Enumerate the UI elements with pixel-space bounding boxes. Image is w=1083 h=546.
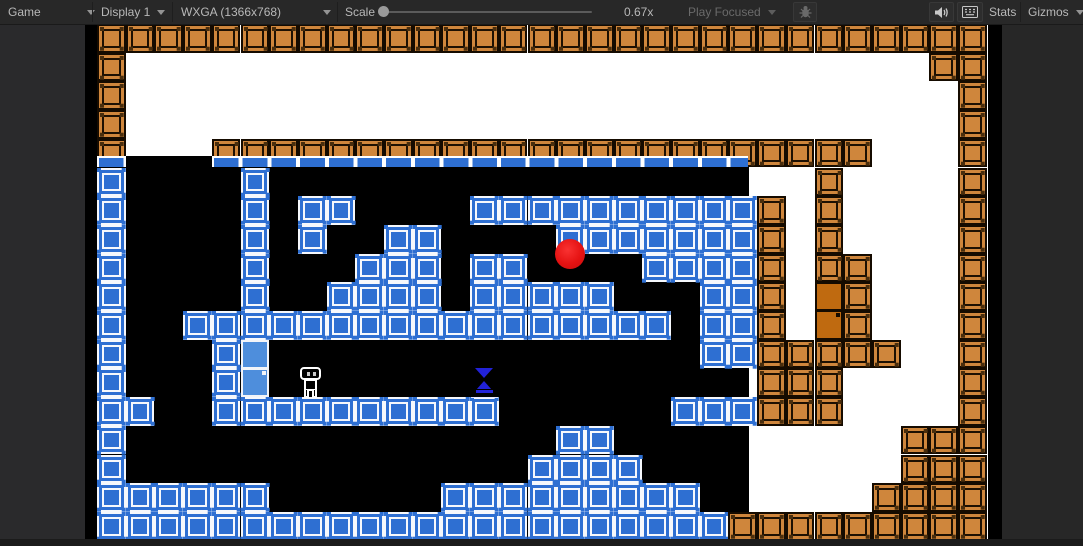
- blue-crate-tile: [97, 455, 126, 484]
- blue-crate-tile: [642, 196, 671, 225]
- orange-crate-tile: [585, 24, 614, 53]
- hourglass-upper-sand: [475, 368, 493, 378]
- orange-crate-tile: [614, 24, 643, 53]
- orange-crate-tile: [441, 24, 470, 53]
- blue-crate-tile: [241, 282, 270, 311]
- orange-crate-tile: [815, 368, 844, 397]
- blue-crate-tile: [642, 311, 671, 340]
- blue-crate-tile: [441, 512, 470, 539]
- orange-crate-tile: [929, 455, 958, 484]
- blue-crate-tile: [97, 368, 126, 397]
- orange-crate-tile: [786, 139, 815, 168]
- orange-crate-tile: [815, 139, 844, 168]
- orange-crate-tile: [728, 512, 757, 539]
- blue-crate-tile: [154, 512, 183, 539]
- blue-crate-tile: [700, 340, 729, 369]
- blue-crate-tile: [126, 512, 155, 539]
- blue-crate-tile: [585, 483, 614, 512]
- orange-crate-tile: [757, 340, 786, 369]
- blue-crate-tile: [528, 512, 557, 539]
- orange-crate-tile: [958, 282, 987, 311]
- stats-button[interactable]: Stats: [989, 0, 1016, 24]
- chevron-down-icon: [157, 10, 165, 15]
- orange-crate-tile: [815, 196, 844, 225]
- blue-crate-tile: [413, 254, 442, 283]
- blue-crate-tile: [355, 254, 384, 283]
- orange-crate-tile: [843, 311, 872, 340]
- blue-crate-tile: [269, 397, 298, 426]
- blue-crate-tile: [384, 311, 413, 340]
- orange-crate-tile: [728, 24, 757, 53]
- blue-tile-strip: [97, 156, 126, 167]
- blue-crate-tile: [413, 282, 442, 311]
- audio-volume-icon: [934, 6, 949, 19]
- blue-crate-tile: [556, 455, 585, 484]
- display-dropdown[interactable]: Display 1: [101, 0, 165, 24]
- orange-crate-tile: [958, 368, 987, 397]
- gizmos-dropdown[interactable]: Gizmos: [1028, 0, 1083, 24]
- orange-crate-tile: [815, 225, 844, 254]
- orange-door-tile: [815, 282, 844, 339]
- blue-crate-tile: [556, 311, 585, 340]
- blue-crate-tile: [728, 225, 757, 254]
- orange-crate-tile: [958, 483, 987, 512]
- blue-crate-tile: [241, 254, 270, 283]
- blue-crate-tile: [327, 282, 356, 311]
- scale-label: Scale: [345, 0, 375, 24]
- blue-crate-tile: [585, 512, 614, 539]
- blue-crate-tile: [556, 282, 585, 311]
- orange-crate-tile: [843, 282, 872, 311]
- blue-crate-tile: [671, 254, 700, 283]
- player-leg: [312, 390, 317, 398]
- blue-crate-tile: [212, 483, 241, 512]
- orange-crate-tile: [958, 110, 987, 139]
- toolbar-separator: [337, 2, 338, 22]
- play-focused-dropdown[interactable]: Play Focused: [688, 0, 776, 24]
- blue-crate-tile: [212, 368, 241, 397]
- orange-crate-tile: [929, 24, 958, 53]
- orange-crate-tile: [958, 53, 987, 82]
- chevron-down-icon: [1076, 10, 1083, 15]
- orange-crate-tile: [97, 53, 126, 82]
- blue-crate-tile: [728, 254, 757, 283]
- orange-crate-tile: [470, 24, 499, 53]
- blue-crate-tile: [614, 225, 643, 254]
- orange-crate-tile: [843, 512, 872, 539]
- blue-crate-tile: [499, 512, 528, 539]
- blue-crate-tile: [499, 311, 528, 340]
- blue-crate-tile: [728, 397, 757, 426]
- blue-crate-tile: [700, 282, 729, 311]
- blue-crate-tile: [671, 196, 700, 225]
- display-dropdown-label: Display 1: [101, 5, 150, 19]
- gizmos-label: Gizmos: [1028, 5, 1069, 19]
- blue-crate-tile: [97, 254, 126, 283]
- blue-crate-tile: [183, 483, 212, 512]
- orange-crate-tile: [958, 24, 987, 53]
- orange-crate-tile: [872, 483, 901, 512]
- bug-icon: [798, 5, 813, 19]
- blue-crate-tile: [212, 512, 241, 539]
- blue-crate-tile: [241, 397, 270, 426]
- blue-crate-tile: [728, 196, 757, 225]
- blue-crate-tile: [126, 397, 155, 426]
- player-eye: [307, 372, 310, 376]
- blue-crate-tile: [355, 311, 384, 340]
- orange-crate-tile: [528, 24, 557, 53]
- blue-crate-tile: [528, 455, 557, 484]
- orange-crate-tile: [183, 24, 212, 53]
- toolbar-separator: [92, 2, 93, 22]
- blue-crate-tile: [642, 512, 671, 539]
- blue-crate-tile: [470, 196, 499, 225]
- blue-crate-tile: [671, 512, 700, 539]
- blue-crate-tile: [556, 512, 585, 539]
- blue-crate-tile: [241, 311, 270, 340]
- blue-crate-tile: [384, 225, 413, 254]
- editor-background-bottom: [0, 539, 1083, 546]
- orange-crate-tile: [700, 24, 729, 53]
- blue-crate-tile: [241, 483, 270, 512]
- orange-crate-tile: [929, 483, 958, 512]
- orange-crate-tile: [815, 24, 844, 53]
- blue-crate-tile: [499, 483, 528, 512]
- blue-crate-tile: [585, 311, 614, 340]
- blue-crate-tile: [298, 311, 327, 340]
- orange-crate-tile: [327, 24, 356, 53]
- blue-crate-tile: [528, 311, 557, 340]
- orange-crate-tile: [872, 24, 901, 53]
- toolbar-separator: [1020, 2, 1021, 22]
- orange-crate-tile: [671, 24, 700, 53]
- blue-crate-tile: [241, 168, 270, 197]
- blue-crate-tile: [384, 254, 413, 283]
- orange-crate-tile: [757, 254, 786, 283]
- orange-crate-tile: [786, 512, 815, 539]
- player-eye: [313, 372, 316, 376]
- frame-debugger-button[interactable]: [793, 2, 817, 22]
- resolution-dropdown-label: WXGA (1366x768): [181, 5, 281, 19]
- blue-crate-tile: [528, 196, 557, 225]
- orange-crate-tile: [154, 24, 183, 53]
- blue-crate-tile: [97, 340, 126, 369]
- orange-crate-tile: [298, 24, 327, 53]
- mute-audio-button[interactable]: [929, 2, 954, 22]
- slider-knob[interactable]: [378, 6, 389, 17]
- orange-crate-tile: [757, 139, 786, 168]
- blue-crate-tile: [470, 311, 499, 340]
- blue-crate-tile: [700, 311, 729, 340]
- blue-crate-tile: [355, 397, 384, 426]
- blue-crate-tile: [441, 397, 470, 426]
- orange-crate-tile: [958, 225, 987, 254]
- orange-crate-tile: [413, 24, 442, 53]
- editor-background-right: [1002, 24, 1083, 546]
- blue-crate-tile: [700, 397, 729, 426]
- unity-game-view: { "toolbar": { "game_tab": "Game", "disp…: [0, 0, 1083, 546]
- orange-crate-tile: [843, 340, 872, 369]
- blue-crate-tile: [97, 397, 126, 426]
- orange-crate-tile: [958, 139, 987, 168]
- orange-crate-tile: [929, 53, 958, 82]
- blue-crate-tile: [298, 225, 327, 254]
- orange-crate-tile: [958, 81, 987, 110]
- blue-crate-tile: [298, 512, 327, 539]
- blue-crate-tile: [384, 512, 413, 539]
- orange-crate-tile: [901, 455, 930, 484]
- blue-crate-tile: [499, 196, 528, 225]
- orange-crate-tile: [757, 196, 786, 225]
- blue-crate-tile: [327, 311, 356, 340]
- blue-crate-tile: [671, 483, 700, 512]
- blue-crate-tile: [241, 512, 270, 539]
- orange-crate-tile: [384, 24, 413, 53]
- blue-crate-tile: [212, 397, 241, 426]
- hourglass-bottom-bar: [471, 394, 498, 398]
- blue-door-tile: [241, 340, 270, 397]
- chevron-down-icon: [768, 10, 776, 15]
- blue-crate-tile: [355, 282, 384, 311]
- orange-crate-tile: [757, 282, 786, 311]
- blue-crate-tile: [441, 311, 470, 340]
- orange-crate-tile: [901, 483, 930, 512]
- blue-crate-tile: [97, 512, 126, 539]
- blue-crate-tile: [700, 196, 729, 225]
- orange-crate-tile: [929, 426, 958, 455]
- red-ball-sprite: [555, 239, 585, 269]
- orange-crate-tile: [843, 139, 872, 168]
- orange-crate-tile: [815, 254, 844, 283]
- resolution-dropdown[interactable]: WXGA (1366x768): [181, 0, 331, 24]
- blue-crate-tile: [241, 196, 270, 225]
- editor-background-left: [0, 24, 85, 546]
- blue-crate-tile: [470, 254, 499, 283]
- orange-crate-tile: [786, 368, 815, 397]
- orange-crate-tile: [901, 512, 930, 539]
- blue-crate-tile: [671, 397, 700, 426]
- blue-crate-tile: [298, 196, 327, 225]
- blue-crate-tile: [728, 340, 757, 369]
- blue-crate-tile: [212, 311, 241, 340]
- blue-crate-tile: [97, 483, 126, 512]
- blue-crate-tile: [499, 254, 528, 283]
- blue-crate-tile: [327, 196, 356, 225]
- blue-crate-tile: [269, 311, 298, 340]
- orange-crate-tile: [757, 225, 786, 254]
- blue-crate-tile: [269, 512, 298, 539]
- scale-value: 0.67x: [624, 0, 653, 24]
- orange-crate-tile: [958, 168, 987, 197]
- blue-crate-tile: [556, 196, 585, 225]
- blue-crate-tile: [298, 397, 327, 426]
- blue-crate-tile: [585, 455, 614, 484]
- orange-crate-tile: [872, 340, 901, 369]
- blue-crate-tile: [700, 254, 729, 283]
- blue-crate-tile: [585, 196, 614, 225]
- orange-crate-tile: [815, 397, 844, 426]
- blue-crate-tile: [528, 282, 557, 311]
- scale-slider[interactable]: [382, 0, 592, 24]
- orange-crate-tile: [757, 24, 786, 53]
- blue-crate-tile: [441, 483, 470, 512]
- blue-crate-tile: [212, 340, 241, 369]
- orange-crate-tile: [269, 24, 298, 53]
- blue-crate-tile: [556, 483, 585, 512]
- orange-crate-tile: [97, 81, 126, 110]
- orange-crate-tile: [843, 24, 872, 53]
- orange-crate-tile: [786, 397, 815, 426]
- game-tab[interactable]: Game: [8, 0, 95, 24]
- blue-crate-tile: [642, 483, 671, 512]
- orange-crate-tile: [958, 311, 987, 340]
- orange-crate-tile: [815, 168, 844, 197]
- keyboard-icon: [962, 6, 978, 18]
- keyboard-shortcuts-button[interactable]: [957, 2, 983, 22]
- blue-crate-tile: [327, 512, 356, 539]
- orange-crate-tile: [212, 24, 241, 53]
- blue-crate-tile: [700, 512, 729, 539]
- blue-crate-tile: [384, 282, 413, 311]
- chevron-down-icon: [87, 10, 95, 15]
- blue-crate-tile: [183, 311, 212, 340]
- blue-crate-tile: [728, 282, 757, 311]
- orange-crate-tile: [958, 512, 987, 539]
- orange-crate-tile: [843, 254, 872, 283]
- chevron-down-icon: [323, 10, 331, 15]
- blue-crate-tile: [384, 397, 413, 426]
- orange-crate-tile: [901, 24, 930, 53]
- blue-crate-tile: [614, 455, 643, 484]
- slider-track[interactable]: [382, 11, 592, 13]
- blue-crate-tile: [97, 311, 126, 340]
- orange-crate-tile: [241, 24, 270, 53]
- blue-crate-tile: [97, 196, 126, 225]
- orange-crate-tile: [958, 426, 987, 455]
- blue-crate-tile: [241, 225, 270, 254]
- orange-crate-tile: [786, 340, 815, 369]
- blue-crate-tile: [585, 426, 614, 455]
- blue-crate-tile: [413, 512, 442, 539]
- blue-crate-tile: [728, 311, 757, 340]
- orange-crate-tile: [97, 24, 126, 53]
- blue-crate-tile: [470, 397, 499, 426]
- blue-crate-tile: [470, 512, 499, 539]
- blue-crate-tile: [614, 512, 643, 539]
- orange-crate-tile: [958, 455, 987, 484]
- orange-crate-tile: [556, 24, 585, 53]
- orange-crate-tile: [757, 311, 786, 340]
- blue-crate-tile: [614, 196, 643, 225]
- orange-crate-tile: [958, 254, 987, 283]
- play-focused-label: Play Focused: [688, 5, 761, 19]
- orange-crate-tile: [958, 397, 987, 426]
- orange-crate-tile: [901, 426, 930, 455]
- orange-crate-tile: [499, 24, 528, 53]
- blue-crate-tile: [499, 282, 528, 311]
- orange-crate-tile: [815, 512, 844, 539]
- orange-crate-tile: [929, 512, 958, 539]
- orange-crate-tile: [97, 110, 126, 139]
- blue-crate-tile: [671, 225, 700, 254]
- orange-crate-tile: [355, 24, 384, 53]
- orange-crate-tile: [757, 512, 786, 539]
- blue-crate-tile: [97, 426, 126, 455]
- blue-crate-tile: [126, 483, 155, 512]
- toolbar-separator: [172, 2, 173, 22]
- orange-crate-tile: [958, 340, 987, 369]
- blue-crate-tile: [97, 282, 126, 311]
- blue-crate-tile: [413, 225, 442, 254]
- blue-crate-tile: [528, 483, 557, 512]
- orange-crate-tile: [642, 24, 671, 53]
- blue-crate-tile: [585, 225, 614, 254]
- blue-crate-tile: [614, 311, 643, 340]
- blue-crate-tile: [97, 225, 126, 254]
- blue-crate-tile: [585, 282, 614, 311]
- blue-crate-tile: [154, 483, 183, 512]
- blue-crate-tile: [183, 512, 212, 539]
- game-tab-label: Game: [8, 5, 41, 19]
- blue-crate-tile: [355, 512, 384, 539]
- blue-crate-tile: [97, 168, 126, 197]
- game-viewport[interactable]: [85, 24, 1002, 539]
- blue-crate-tile: [700, 225, 729, 254]
- blue-tile-strip: [212, 156, 748, 167]
- player-leg: [304, 390, 309, 398]
- orange-crate-tile: [786, 24, 815, 53]
- blue-crate-tile: [614, 483, 643, 512]
- orange-crate-tile: [872, 512, 901, 539]
- blue-crate-tile: [470, 282, 499, 311]
- blue-crate-tile: [413, 397, 442, 426]
- orange-crate-tile: [757, 368, 786, 397]
- blue-crate-tile: [413, 311, 442, 340]
- orange-crate-tile: [958, 196, 987, 225]
- orange-crate-tile: [757, 397, 786, 426]
- game-view-toolbar: Game Display 1 WXGA (1366x768) Scale 0.6…: [0, 0, 1083, 25]
- blue-crate-tile: [642, 254, 671, 283]
- blue-crate-tile: [470, 483, 499, 512]
- orange-crate-tile: [815, 340, 844, 369]
- orange-crate-tile: [126, 24, 155, 53]
- hourglass-sprite: [471, 363, 498, 398]
- blue-crate-tile: [642, 225, 671, 254]
- player-sprite: [300, 367, 321, 398]
- blue-crate-tile: [327, 397, 356, 426]
- blue-crate-tile: [556, 426, 585, 455]
